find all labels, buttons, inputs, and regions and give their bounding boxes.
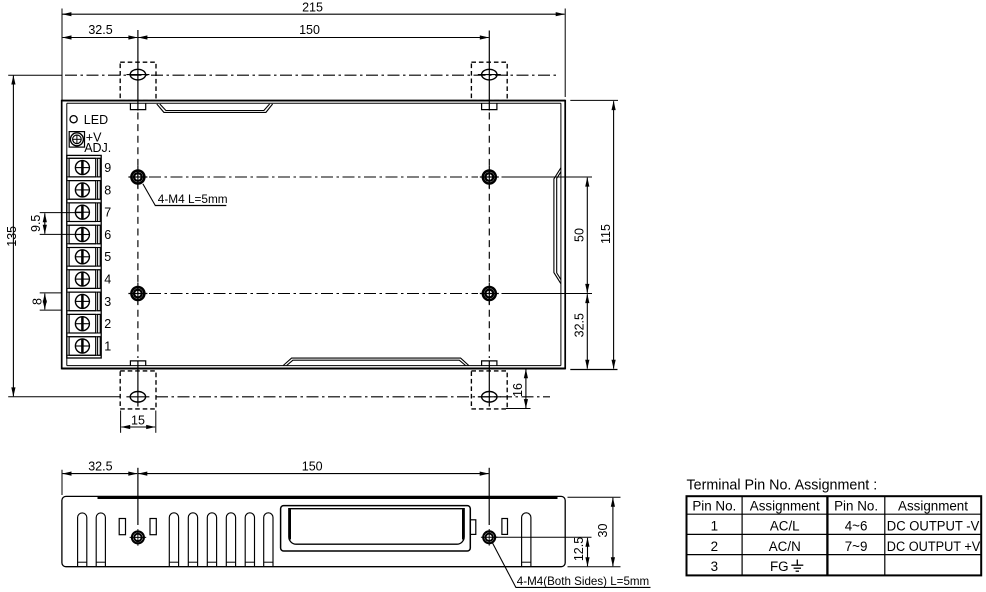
svg-text:32.5: 32.5 <box>88 460 112 474</box>
svg-text:2: 2 <box>104 317 111 331</box>
svg-text:LED: LED <box>84 113 108 127</box>
svg-text:32.5: 32.5 <box>573 313 587 337</box>
svg-text:1: 1 <box>711 519 718 534</box>
svg-text:135: 135 <box>5 226 19 247</box>
svg-text:50: 50 <box>573 228 587 242</box>
svg-text:4-M4 L=5mm: 4-M4 L=5mm <box>158 192 228 206</box>
svg-text:12.5: 12.5 <box>572 537 586 561</box>
svg-text:115: 115 <box>599 224 613 244</box>
svg-text:7: 7 <box>104 206 111 220</box>
svg-text:15: 15 <box>131 414 145 428</box>
svg-text:Terminal Pin No. Assignment :: Terminal Pin No. Assignment : <box>687 478 878 494</box>
svg-text:3: 3 <box>711 559 718 574</box>
svg-text:5: 5 <box>104 250 111 264</box>
svg-text:30: 30 <box>596 524 610 538</box>
svg-text:8: 8 <box>104 183 111 197</box>
svg-text:AC/L: AC/L <box>770 519 800 534</box>
svg-text:6: 6 <box>104 228 111 242</box>
svg-text:16: 16 <box>511 383 525 397</box>
svg-text:AC/N: AC/N <box>769 539 801 554</box>
svg-text:DC OUTPUT -V: DC OUTPUT -V <box>887 519 980 534</box>
svg-text:4-M4(Both Sides) L=5mm: 4-M4(Both Sides) L=5mm <box>517 575 649 588</box>
svg-text:ADJ.: ADJ. <box>84 141 111 155</box>
svg-text:150: 150 <box>302 460 323 474</box>
svg-text:8: 8 <box>31 298 45 305</box>
svg-text:1: 1 <box>104 339 111 353</box>
svg-text:32.5: 32.5 <box>88 23 112 37</box>
svg-text:2: 2 <box>711 539 718 554</box>
svg-text:7~9: 7~9 <box>845 539 868 554</box>
svg-text:Pin No.: Pin No. <box>692 498 736 513</box>
svg-text:4~6: 4~6 <box>845 519 868 534</box>
svg-text:DC OUTPUT +V: DC OUTPUT +V <box>887 539 981 554</box>
svg-text:215: 215 <box>302 0 323 14</box>
svg-text:4: 4 <box>104 273 111 287</box>
svg-text:3: 3 <box>104 295 111 309</box>
svg-text:Assignment: Assignment <box>898 498 968 513</box>
svg-text:9: 9 <box>104 161 111 175</box>
svg-text:150: 150 <box>299 23 320 37</box>
svg-text:FG: FG <box>770 559 789 574</box>
svg-text:Pin No.: Pin No. <box>834 498 878 513</box>
svg-text:Assignment: Assignment <box>750 498 820 513</box>
svg-text:9.5: 9.5 <box>29 215 43 232</box>
